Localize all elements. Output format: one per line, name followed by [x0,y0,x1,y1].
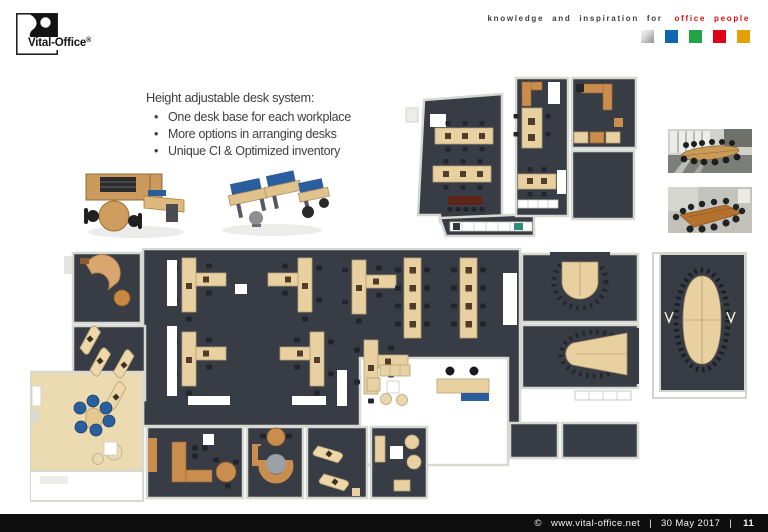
logo-wordmark: Vital-Office® [26,37,93,50]
bullet-text: One desk base for each workplace [168,109,351,126]
product-render-desk-cluster [212,168,338,242]
color-square-green [689,30,702,43]
logo-brand-text: Vital-Office [28,37,86,49]
bullet-item: • One desk base for each workplace [146,109,396,126]
page-number: 11 [743,518,754,529]
floorplan-upper-graphic [404,74,640,242]
feature-text-block: Height adjustable desk system: • One des… [146,90,396,160]
headline: Height adjustable desk system: [146,90,396,105]
bullet-dot: • [154,109,168,126]
tagline-highlight: office people [675,14,750,23]
conference-room-photo-bottom [668,187,752,233]
bullet-text: More options in arranging desks [168,126,337,143]
color-square-amber [737,30,750,43]
conference-room-photo-top [668,129,752,173]
slide-page: Vital-Office® knowledge and inspiration … [0,0,768,532]
footer-date: 30 May 2017 [661,518,720,529]
footer-website: www.vital-office.net [551,518,640,529]
bullet-list: • One desk base for each workplace • Mor… [146,109,396,160]
color-square-red [713,30,726,43]
floorplan-main-graphic [30,248,645,503]
tagline-prefix: knowledge and inspiration for [488,14,663,23]
color-square-silver [641,30,654,43]
bullet-item: • Unique CI & Optimized inventory [146,143,396,160]
bullet-text: Unique CI & Optimized inventory [168,143,340,160]
footer-separator: | [649,518,652,529]
footer-separator: | [729,518,732,529]
footer-bar: © www.vital-office.net | 30 May 2017 | 1… [0,514,768,532]
bullet-dot: • [154,143,168,160]
color-square-blue [665,30,678,43]
copyright-symbol: © [535,518,542,529]
tagline: knowledge and inspiration for office peo… [488,14,750,23]
brand-color-squares [641,30,750,43]
registered-mark: ® [86,37,91,44]
product-render-workstation [74,166,204,242]
floorplan-boardroom-graphic [652,252,748,400]
bullet-item: • More options in arranging desks [146,126,396,143]
bullet-dot: • [154,126,168,143]
